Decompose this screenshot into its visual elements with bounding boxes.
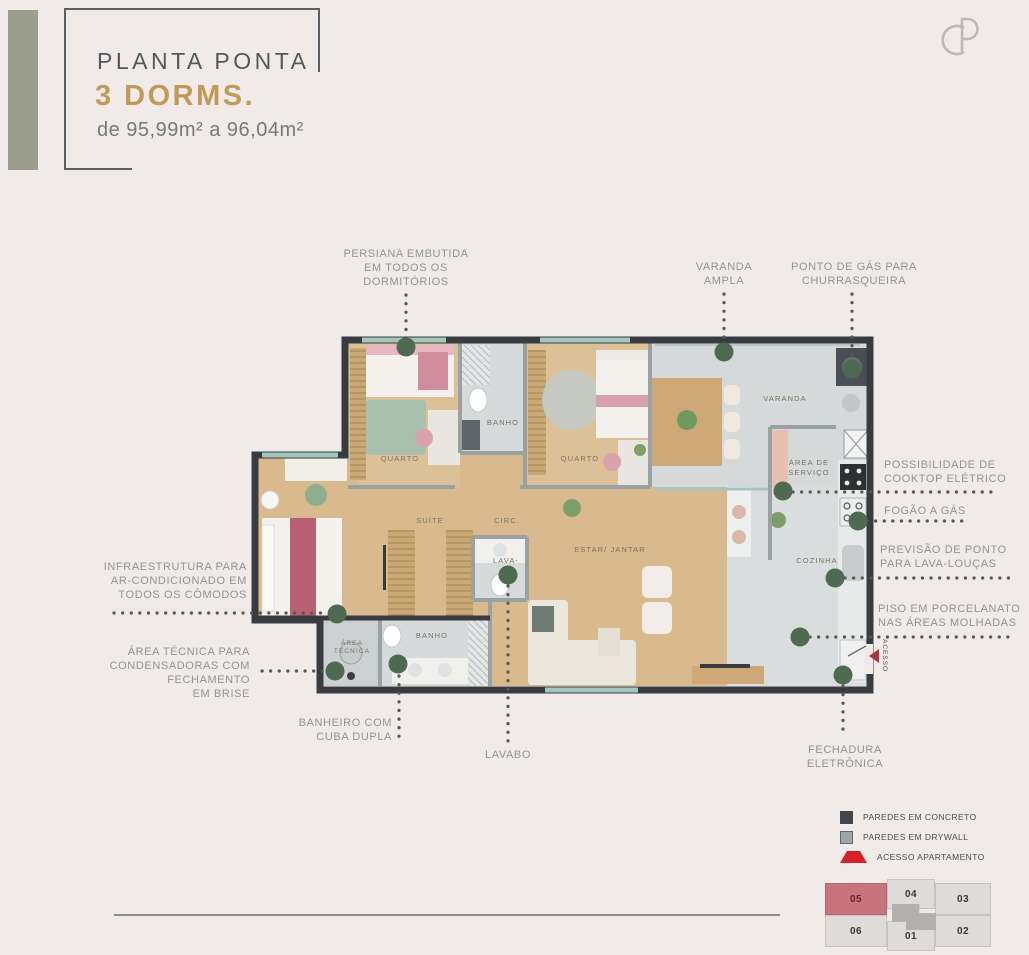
callout-piso: PISO EM PORCELANATO NAS ÁREAS MOLHADAS [878, 602, 1028, 630]
room-label-banho2: BANHO [402, 631, 462, 641]
room-label-varanda: VARANDA [745, 394, 825, 404]
callout-varanda-ampla: VARANDA AMPLA [674, 260, 774, 288]
room-label-banho1: BANHO [473, 418, 533, 428]
footer-rule [114, 914, 780, 916]
room-label-lavabo: LAVA- [481, 556, 531, 566]
legend-item-drywall: PAREDES EM DRYWALL [840, 830, 985, 844]
callout-banheiro-cuba: BANHEIRO COM CUBA DUPLA [244, 716, 392, 744]
access-label: ACESSO [881, 639, 888, 672]
room-label-quarto1: QUARTO [360, 454, 440, 464]
room-label-quarto2: QUARTO [540, 454, 620, 464]
callout-fechadura: FECHADURA ELETRÔNICA [795, 743, 895, 771]
legend-item-concreto: PAREDES EM CONCRETO [840, 810, 985, 824]
key-plan-unit-05: 05 [826, 884, 886, 914]
legend-item-acesso: ACESSO APARTAMENTO [840, 850, 985, 864]
callout-persiana: PERSIANA EMBUTIDA EM TODOS OS DORMITÓRIO… [330, 247, 482, 289]
room-label-area-tecnica: ÁREA TÉCNICA [327, 640, 377, 657]
legend-label-drywall: PAREDES EM DRYWALL [863, 832, 968, 842]
key-plan: 05 04 03 06 01 02 [822, 878, 1002, 952]
legend-label-acesso: ACESSO APARTAMENTO [877, 852, 985, 862]
room-label-cozinha: COZINHA [787, 556, 847, 566]
callout-lavabo: LAVABO [470, 748, 546, 762]
room-label-area-servico: ÁREA DE SERVIÇO [778, 458, 840, 478]
callout-area-tecnica: ÁREA TÉCNICA PARA CONDENSADORAS COM FECH… [100, 645, 250, 701]
drywall-swatch-icon [840, 831, 853, 844]
callout-ponto-gas: PONTO DE GÁS PARA CHURRASQUEIRA [778, 260, 930, 288]
key-plan-unit-03: 03 [936, 884, 990, 914]
room-label-estar-jantar: ESTAR/ JANTAR [550, 545, 670, 555]
key-plan-unit-04: 04 [888, 880, 934, 908]
room-label-suite: SUÍTE [400, 516, 460, 526]
key-plan-unit-06: 06 [826, 916, 886, 946]
callout-fogao: FOGÃO A GÁS [884, 504, 1024, 518]
key-plan-unit-02: 02 [936, 916, 990, 946]
access-triangle-icon [840, 851, 867, 863]
callout-cooktop: POSSIBILIDADE DE COOKTOP ELÉTRICO [884, 458, 1024, 486]
room-label-circ: CIRC. [482, 516, 532, 526]
legend-label-concreto: PAREDES EM CONCRETO [863, 812, 977, 822]
callout-infra-ac: INFRAESTRUTURA PARA AR-CONDICIONADO EM T… [95, 560, 247, 602]
concrete-swatch-icon [840, 811, 853, 824]
callout-lava-loucas: PREVISÃO DE PONTO PARA LAVA-LOUÇAS [880, 543, 1025, 571]
floor-plan-page: PLANTA PONTA 3 DORMS. de 95,99m² a 96,04… [0, 0, 1029, 955]
legend: PAREDES EM CONCRETO PAREDES EM DRYWALL A… [840, 810, 985, 870]
